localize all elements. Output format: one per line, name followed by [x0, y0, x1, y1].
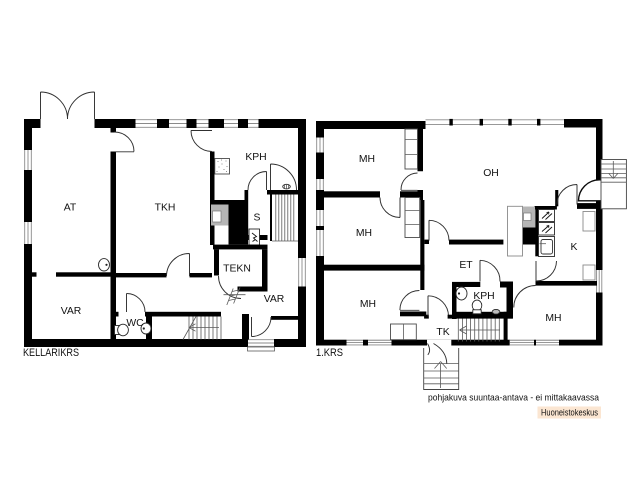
svg-text:TK: TK: [436, 327, 449, 338]
svg-text:OH: OH: [483, 168, 499, 179]
svg-text:1.KRS: 1.KRS: [316, 347, 343, 359]
svg-text:MH: MH: [545, 313, 561, 324]
svg-text:WC: WC: [126, 318, 144, 329]
svg-text:MH: MH: [360, 299, 376, 310]
svg-text:S: S: [254, 213, 261, 224]
svg-text:KPH: KPH: [245, 152, 266, 163]
svg-text:VAR: VAR: [264, 294, 285, 305]
svg-text:pohjakuva suuntaa-antava - ei: pohjakuva suuntaa-antava - ei mittakaava…: [428, 393, 600, 404]
svg-text:AT: AT: [64, 203, 77, 214]
svg-text:VAR: VAR: [61, 306, 82, 317]
svg-text:KPH: KPH: [473, 291, 494, 302]
svg-text:MH: MH: [359, 154, 375, 165]
svg-text:ET: ET: [459, 260, 473, 271]
svg-text:TKH: TKH: [155, 203, 176, 214]
svg-text:MH: MH: [356, 228, 372, 239]
svg-text:KELLARIKRS: KELLARIKRS: [23, 347, 79, 359]
svg-text:Huoneistokeskus: Huoneistokeskus: [541, 408, 598, 418]
svg-text:K: K: [571, 242, 578, 253]
svg-text:TEKN: TEKN: [223, 264, 251, 275]
